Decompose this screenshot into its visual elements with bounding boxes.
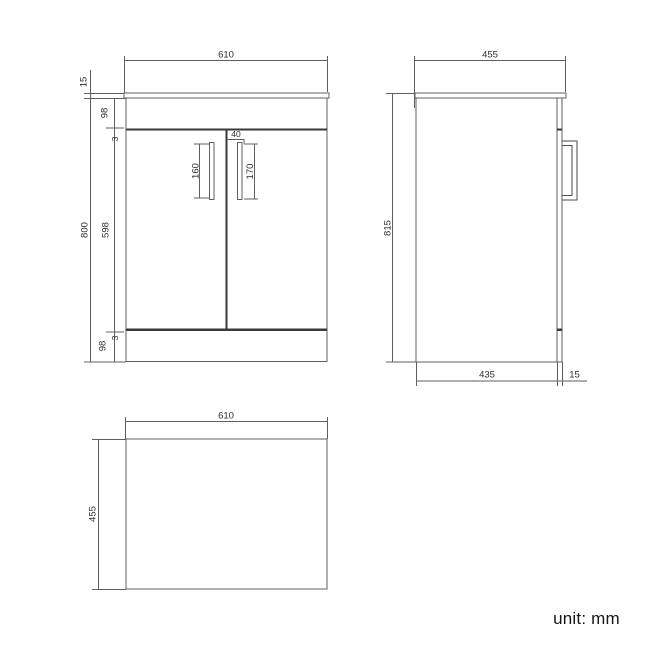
front-width-dim: 610 [125, 50, 328, 94]
top-depth-dim: 455 [88, 439, 127, 590]
side-door-thickness-label: 15 [569, 370, 580, 381]
side-handle-inner-profile [563, 146, 573, 196]
top-depth-label: 455 [88, 506, 99, 522]
front-top-panel-label: 98 [100, 108, 111, 119]
front-right-handle-label: 170 [245, 164, 256, 180]
front-bottom-gap-label: 3 [110, 335, 120, 340]
side-countertop [415, 93, 566, 98]
front-left-handle-label: 160 [191, 163, 202, 179]
front-left-door-handle [210, 143, 215, 200]
front-right-door-handle [238, 143, 243, 200]
front-width-label: 610 [218, 50, 234, 61]
side-bottom-dims: 435 15 [417, 362, 588, 386]
front-door-height-label: 598 [101, 222, 112, 238]
front-height-label: 800 [80, 222, 91, 238]
top-width-label: 610 [218, 411, 234, 422]
front-countertop [124, 93, 329, 98]
top-width-dim: 610 [126, 411, 328, 440]
front-handle-offset-label: 40 [231, 129, 241, 139]
top-outline [126, 439, 327, 589]
front-view: 610 15 800 98 3 598 3 98 160 [79, 50, 330, 363]
unit-label: unit: mm [553, 609, 620, 628]
side-door-panel [557, 98, 562, 362]
side-base-depth-label: 435 [479, 370, 495, 381]
front-countertop-thickness-label: 15 [79, 77, 90, 88]
side-height-dim: 815 [383, 93, 417, 362]
top-view: 610 455 [88, 411, 328, 590]
side-handle-outer-profile [563, 141, 578, 200]
side-depth-label: 455 [482, 50, 498, 61]
front-bottom-panel-label: 98 [98, 341, 109, 352]
technical-drawing: 610 15 800 98 3 598 3 98 160 [0, 0, 650, 650]
front-panel-stack-dims: 98 3 598 3 98 [98, 98, 125, 362]
side-height-label: 815 [383, 220, 394, 236]
side-view: 455 815 435 15 [383, 50, 588, 387]
front-top-gap-label: 3 [110, 136, 120, 141]
side-cabinet-body [416, 98, 557, 362]
